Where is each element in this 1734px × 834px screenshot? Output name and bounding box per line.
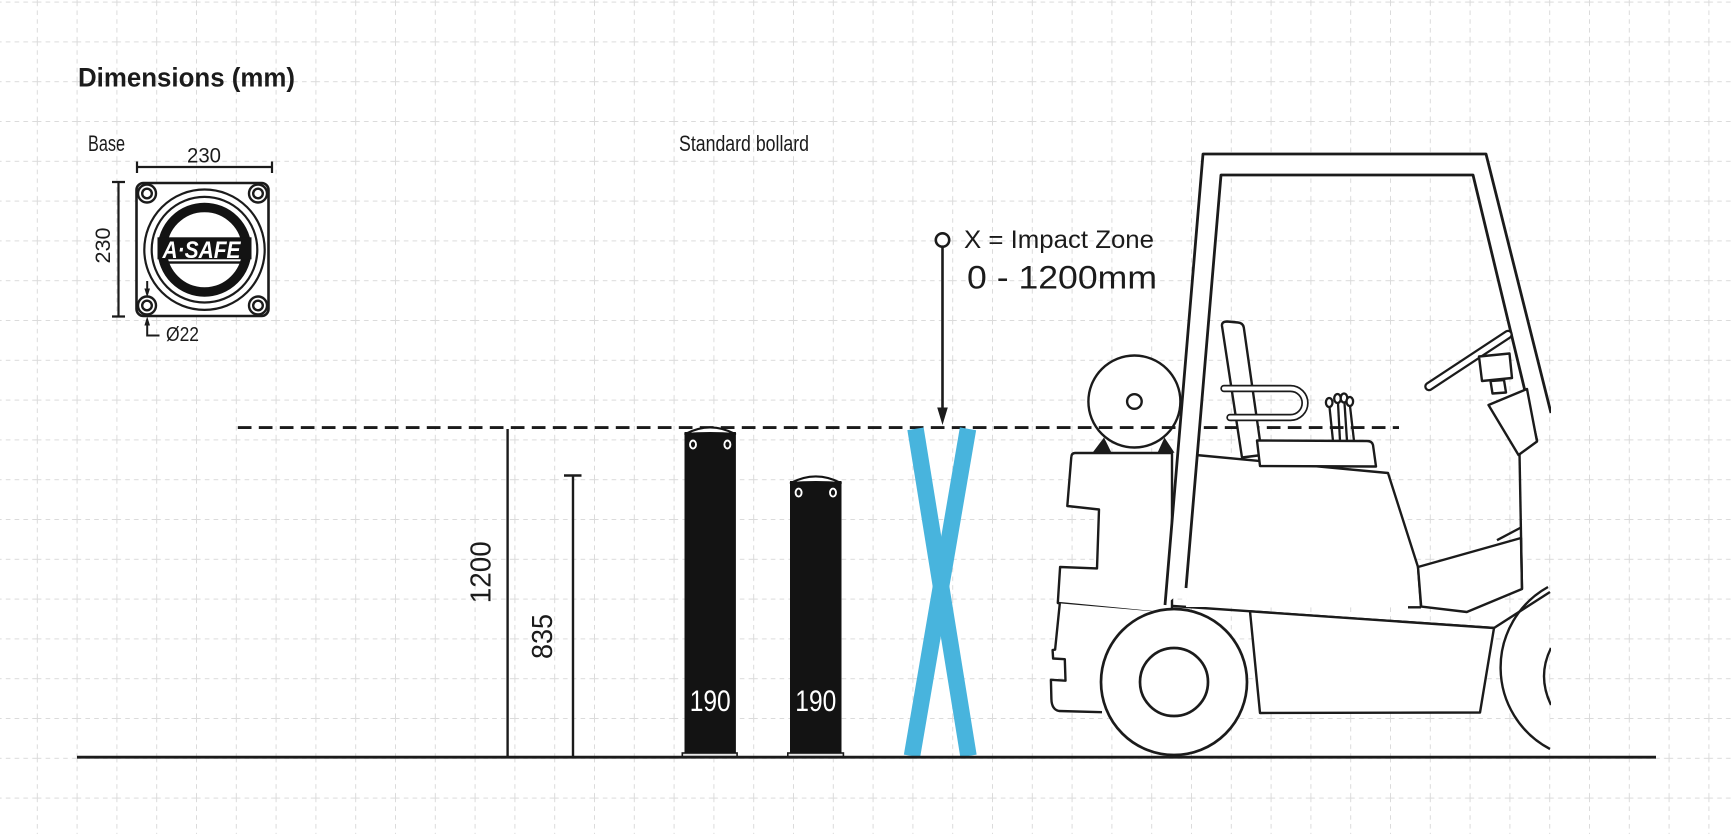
svg-text:230: 230	[92, 228, 115, 264]
svg-text:190: 190	[690, 685, 731, 718]
svg-text:Standard bollard: Standard bollard	[679, 131, 809, 156]
svg-text:1200: 1200	[465, 541, 497, 603]
svg-text:X = Impact Zone: X = Impact Zone	[964, 226, 1154, 254]
svg-text:Dimensions (mm): Dimensions (mm)	[78, 63, 295, 93]
svg-text:230: 230	[187, 145, 221, 168]
svg-text:Base: Base	[88, 131, 125, 156]
svg-text:A·SAFE: A·SAFE	[162, 237, 242, 264]
svg-text:190: 190	[795, 685, 836, 718]
svg-text:0 - 1200mm: 0 - 1200mm	[967, 260, 1157, 296]
svg-text:Ø22: Ø22	[166, 324, 199, 346]
svg-text:835: 835	[527, 614, 559, 659]
